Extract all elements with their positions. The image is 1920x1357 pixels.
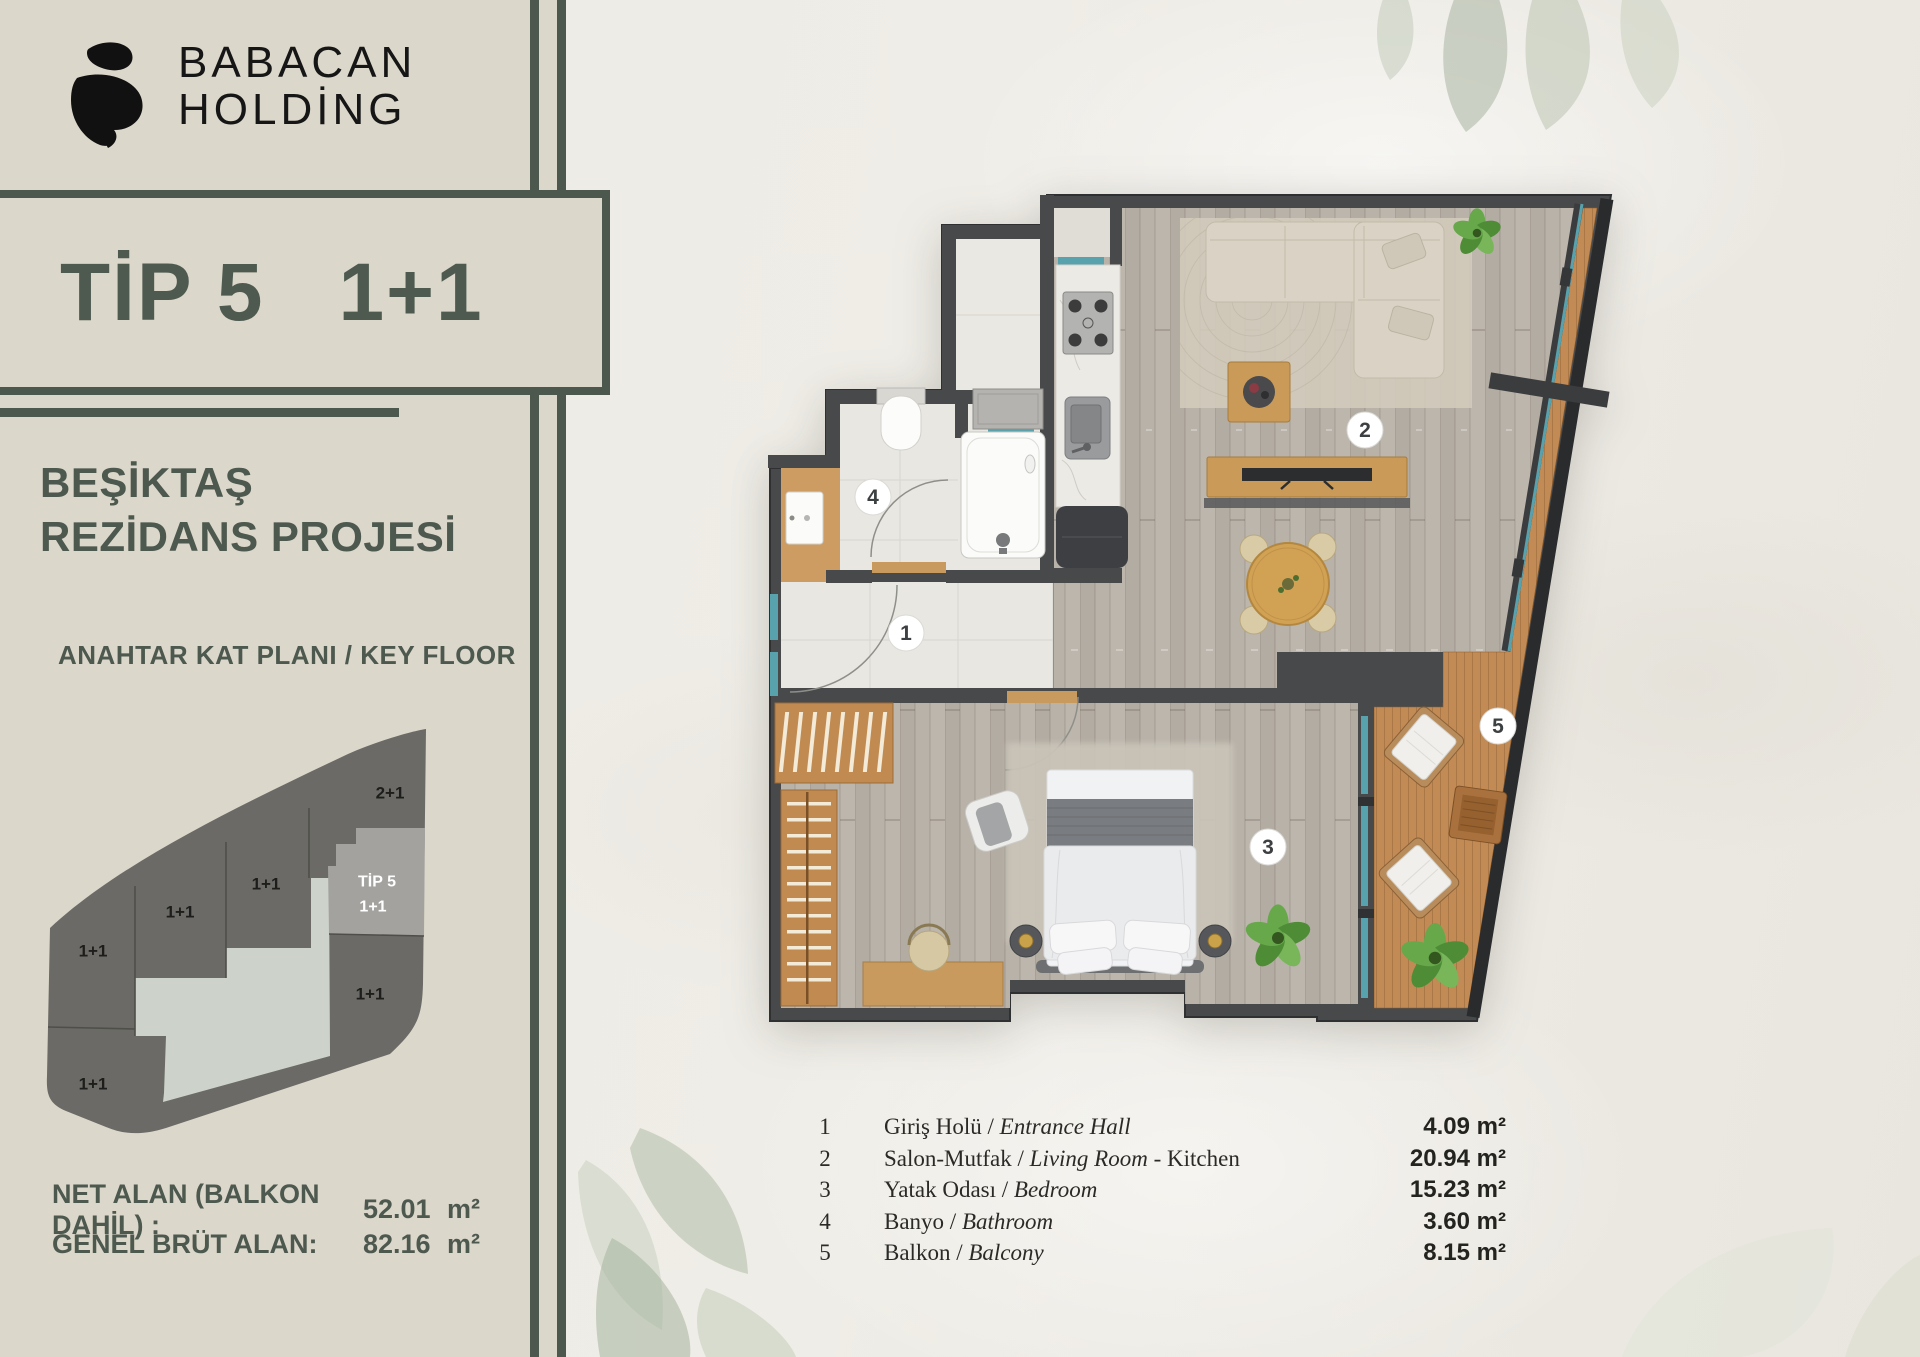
nightstand-right [1199, 925, 1231, 957]
key-unit-1plus1-e: 1+1 [79, 1075, 108, 1094]
bed [1036, 770, 1204, 975]
key-unit-1plus1-a: 1+1 [252, 875, 281, 894]
brochure-page: BABACAN HOLDİNG TİP 5 1+1 BEŞİKTAŞ REZİD… [0, 0, 1920, 1357]
legend-row-3: 3 Yatak Odası / Bedroom 15.23 m² [812, 1176, 1506, 1208]
apartment-floor-plan: 1 2 3 4 5 [700, 120, 1720, 1080]
key-plan-caption: ANAHTAR KAT PLANI / KEY FLOOR [58, 640, 516, 671]
key-unit-2plus1: 2+1 [376, 784, 405, 803]
key-highlight-label-line1: TİP 5 [358, 873, 396, 891]
legend-label: Balkon / Balcony [884, 1240, 1356, 1266]
key-unit-1plus1-b: 1+1 [166, 903, 195, 922]
legend-number: 3 [812, 1177, 838, 1203]
project-title: BEŞİKTAŞ REZİDANS PROJESİ [40, 456, 456, 564]
svg-text:1: 1 [900, 622, 912, 645]
gross-area-row: GENEL BRÜT ALAN: 82.16 m² [52, 1227, 480, 1262]
legend-row-4: 4 Banyo / Bathroom 3.60 m² [812, 1208, 1506, 1240]
legend-area-value: 15.23 m² [1356, 1176, 1506, 1204]
key-unit-1plus1-d: 1+1 [356, 985, 385, 1004]
stove-icon [1063, 292, 1113, 354]
key-highlight-label-line2: 1+1 [359, 899, 386, 916]
legend-label: Banyo / Bathroom [884, 1209, 1356, 1235]
gross-area-label: GENEL BRÜT ALAN: [52, 1229, 363, 1260]
legend-area-value: 3.60 m² [1356, 1208, 1506, 1236]
key-unit-1plus1-c: 1+1 [79, 942, 108, 961]
brand-wordmark: BABACAN HOLDİNG [178, 40, 416, 133]
legend-label: Yatak Odası / Bedroom [884, 1177, 1356, 1203]
legend-area-value: 8.15 m² [1356, 1239, 1506, 1267]
legend-number: 4 [812, 1209, 838, 1235]
project-line1: BEŞİKTAŞ [40, 456, 456, 510]
svg-text:4: 4 [867, 486, 879, 509]
net-area-row: NET ALAN (BALKON DAHİL) : 52.01 m² [52, 1192, 480, 1227]
brand-line1: BABACAN [178, 40, 416, 87]
room-marker-3: 3 [1250, 829, 1286, 865]
nightstand-left [1010, 925, 1042, 957]
legend-row-2: 2 Salon-Mutfak / Living Room - Kitchen 2… [812, 1145, 1506, 1177]
key-floor-plan: 2+1 1+1 1+1 1+1 1+1 1+1 TİP 5 1+1 [28, 716, 438, 1146]
room-marker-2: 2 [1347, 412, 1383, 448]
legend-row-1: 1 Giriş Holü / Entrance Hall 4.09 m² [812, 1113, 1506, 1145]
brand-logo: BABACAN HOLDİNG [62, 40, 416, 152]
area-summary: NET ALAN (BALKON DAHİL) : 52.01 m² GENEL… [52, 1192, 480, 1262]
legend-area-value: 20.94 m² [1356, 1145, 1506, 1173]
gross-area-unit: m² [447, 1229, 480, 1260]
svg-text:5: 5 [1492, 715, 1504, 738]
net-area-value: 52.01 [363, 1194, 429, 1225]
dining-set [1240, 533, 1336, 634]
coffee-table-icon [1228, 362, 1290, 422]
room-marker-5: 5 [1480, 708, 1516, 744]
brand-line2: HOLDİNG [178, 87, 416, 134]
tv-console [1204, 457, 1410, 508]
kitchen-sink-icon [1065, 397, 1110, 459]
room-marker-4: 4 [855, 479, 891, 515]
laundry-niche [973, 389, 1043, 429]
unit-layout-label: 1+1 [338, 246, 483, 340]
legend-row-5: 5 Balkon / Balcony 8.15 m² [812, 1239, 1506, 1271]
legend-number: 1 [812, 1114, 838, 1140]
room-legend: 1 Giriş Holü / Entrance Hall 4.09 m² 2 S… [812, 1113, 1506, 1271]
balcony-side-table [1449, 786, 1508, 845]
babacan-logo-icon [62, 40, 162, 152]
legend-label: Salon-Mutfak / Living Room - Kitchen [884, 1146, 1356, 1172]
unit-type-label: TİP 5 [60, 246, 264, 340]
washing-machine-icon [973, 389, 1043, 429]
toilet-icon [881, 396, 921, 450]
unit-type-box: TİP 5 1+1 [0, 190, 610, 395]
room-marker-1: 1 [888, 615, 924, 651]
legend-label: Giriş Holü / Entrance Hall [884, 1114, 1356, 1140]
legend-number: 5 [812, 1240, 838, 1266]
kitchen [1056, 265, 1128, 568]
project-line2: REZİDANS PROJESİ [40, 510, 456, 564]
legend-number: 2 [812, 1146, 838, 1172]
net-area-unit: m² [447, 1194, 480, 1225]
svg-text:2: 2 [1359, 419, 1371, 442]
legend-area-value: 4.09 m² [1356, 1113, 1506, 1141]
gross-area-value: 82.16 [363, 1229, 429, 1260]
title-underline [0, 408, 399, 417]
svg-text:3: 3 [1262, 836, 1274, 859]
desk-chair [909, 925, 949, 971]
